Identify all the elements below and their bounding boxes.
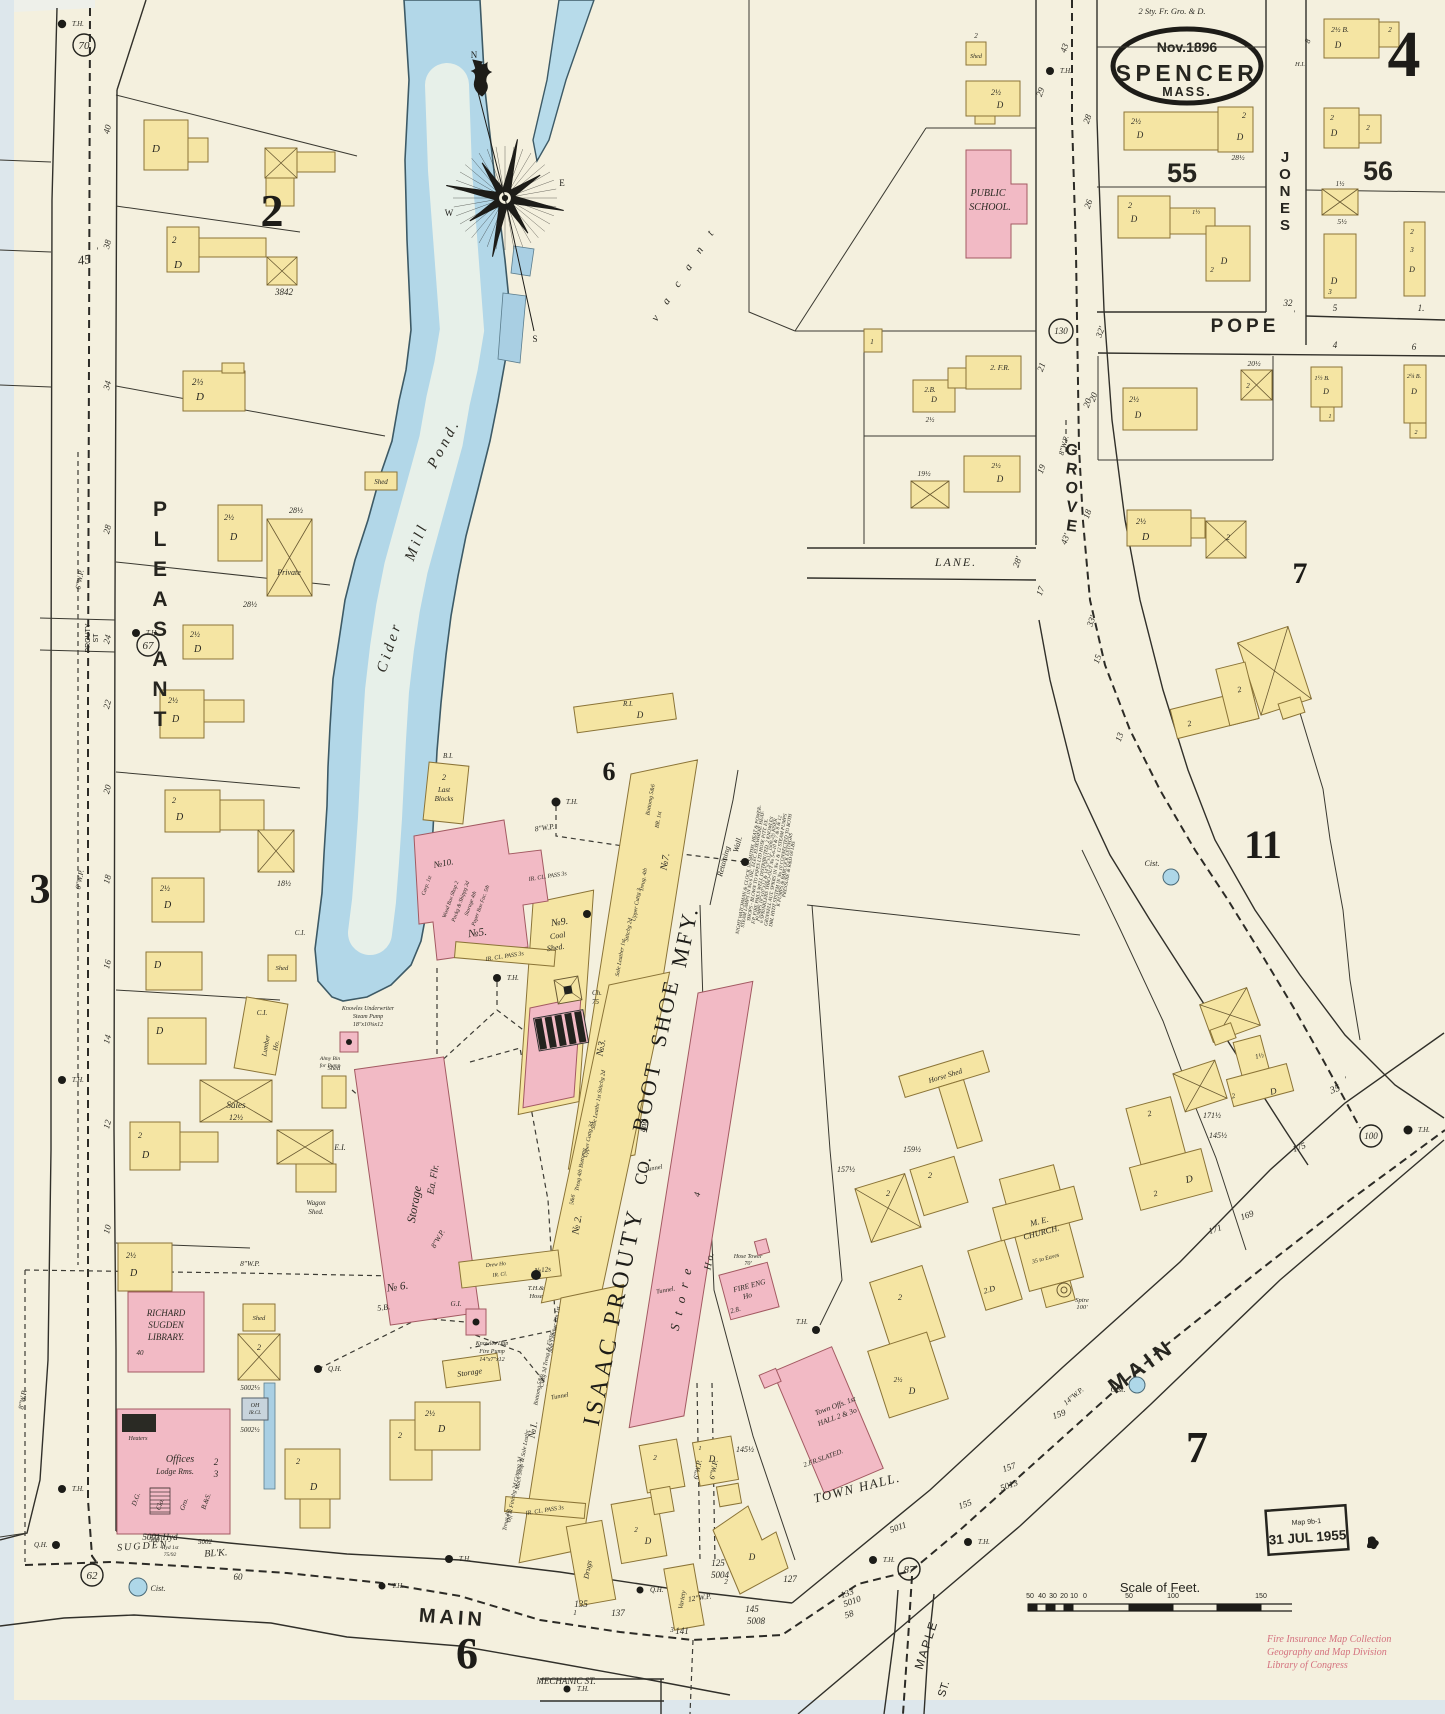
svg-text:2: 2	[1246, 382, 1250, 390]
svg-text:5002⅓: 5002⅓	[240, 1384, 260, 1392]
svg-text:Heaters: Heaters	[128, 1436, 149, 1442]
svg-text:J: J	[1281, 149, 1289, 166]
svg-text:20½: 20½	[1247, 359, 1261, 368]
svg-text:2½: 2½	[160, 884, 170, 893]
svg-text:Knowles Dup: Knowles Dup	[475, 1341, 509, 1347]
svg-text:32: 32	[1283, 298, 1294, 308]
svg-text:Cist.: Cist.	[151, 1584, 166, 1593]
svg-text:2: 2	[1210, 266, 1214, 274]
svg-text:100': 100'	[1076, 1304, 1088, 1311]
svg-text:2½: 2½	[190, 630, 200, 639]
svg-text:T.H.: T.H.	[392, 1582, 404, 1590]
svg-text:A: A	[152, 588, 167, 611]
svg-text:2: 2	[653, 1454, 657, 1462]
svg-text:Cist.: Cist.	[1111, 1385, 1126, 1394]
svg-text:D: D	[1141, 532, 1150, 543]
svg-text:A: A	[152, 648, 167, 671]
svg-text:O: O	[1064, 479, 1079, 498]
svg-text:8"W.P.: 8"W.P.	[240, 1259, 260, 1268]
svg-text:Q.H.: Q.H.	[328, 1365, 342, 1373]
svg-text:IR.CL: IR.CL	[248, 1411, 261, 1416]
svg-text:D: D	[1236, 132, 1244, 142]
svg-text:T.H.: T.H.	[146, 629, 158, 637]
svg-text:5002½: 5002½	[240, 1426, 260, 1434]
svg-text:Steam Pump: Steam Pump	[353, 1014, 383, 1020]
svg-text:Fire Insurance Map Collection: Fire Insurance Map Collection	[1266, 1634, 1391, 1645]
svg-text:T.H.: T.H.	[883, 1556, 895, 1564]
svg-text:T.H.: T.H.	[72, 1076, 84, 1084]
svg-text:MASS.: MASS.	[1162, 85, 1212, 99]
svg-text:40: 40	[137, 1349, 145, 1357]
svg-text:D: D	[195, 391, 204, 403]
svg-text:N: N	[471, 50, 478, 60]
svg-text:Spire: Spire	[1075, 1297, 1089, 1304]
svg-text:1½: 1½	[1336, 180, 1346, 188]
svg-text:E: E	[559, 178, 565, 188]
svg-text:2½: 2½	[168, 696, 178, 705]
svg-text:C.I.: C.I.	[257, 1009, 268, 1017]
svg-text:Hyd 1st: Hyd 1st	[161, 1545, 179, 1551]
svg-text:Hose: Hose	[528, 1293, 542, 1300]
svg-text:2½: 2½	[1136, 517, 1146, 526]
svg-text:127: 127	[783, 1574, 797, 1584]
svg-text:1: 1	[870, 338, 874, 346]
svg-text:2: 2	[1330, 113, 1334, 122]
svg-text:2½: 2½	[991, 88, 1001, 97]
svg-text:5.B.: 5.B.	[377, 1302, 391, 1313]
svg-text:D: D	[141, 1150, 150, 1161]
svg-text:2. F.R.: 2. F.R.	[990, 363, 1010, 372]
svg-text:56: 56	[1363, 156, 1393, 186]
svg-text:D: D	[1322, 387, 1329, 396]
svg-text:1.: 1.	[1418, 303, 1425, 313]
svg-text:2½: 2½	[1131, 117, 1141, 126]
svg-text:Shed: Shed	[374, 478, 388, 486]
svg-text:2: 2	[928, 1171, 932, 1180]
svg-text:70': 70'	[744, 1261, 752, 1267]
svg-text:11: 11	[1244, 822, 1282, 867]
svg-text:2: 2	[1410, 228, 1414, 236]
svg-text:Fire Pump: Fire Pump	[478, 1349, 505, 1355]
svg-text:7: 7	[1293, 557, 1308, 590]
svg-text:5004: 5004	[711, 1570, 730, 1580]
svg-text:Q.H.: Q.H.	[650, 1586, 664, 1594]
svg-text:T.H.: T.H.	[1060, 67, 1072, 75]
svg-text:D: D	[636, 710, 644, 720]
svg-text:5: 5	[1333, 303, 1338, 313]
svg-text:145: 145	[745, 1604, 759, 1614]
svg-text:D: D	[173, 259, 182, 271]
svg-text:30: 30	[1049, 1593, 1057, 1600]
svg-text:D: D	[644, 1536, 652, 1546]
svg-text:2½: 2½	[991, 461, 1001, 470]
svg-text:T.H.: T.H.	[507, 974, 519, 982]
svg-text:2: 2	[1242, 111, 1246, 120]
svg-text:D: D	[1220, 256, 1228, 266]
svg-text:137: 137	[611, 1608, 625, 1618]
svg-text:7: 7	[1186, 1423, 1208, 1472]
svg-text:1: 1	[698, 1445, 701, 1452]
svg-text:T.H.: T.H.	[978, 1538, 990, 1546]
svg-text:Geography and Map Division: Geography and Map Division	[1267, 1647, 1387, 1658]
svg-text:D: D	[163, 900, 172, 911]
svg-text:2½: 2½	[1129, 395, 1139, 404]
svg-text:2: 2	[257, 1343, 261, 1352]
svg-text:E: E	[153, 558, 167, 581]
svg-text:2: 2	[172, 796, 176, 805]
svg-text:E: E	[1280, 200, 1290, 217]
svg-text:T.H.&: T.H.&	[528, 1285, 545, 1292]
svg-text:2½: 2½	[224, 513, 234, 522]
svg-text:2: 2	[296, 1457, 300, 1466]
svg-text:171½: 171½	[1203, 1111, 1221, 1120]
svg-text:2.B.: 2.B.	[924, 386, 936, 394]
svg-text:D: D	[153, 960, 162, 971]
svg-text:Knowles Underwriter: Knowles Underwriter	[341, 1006, 395, 1012]
svg-text:2: 2	[1226, 533, 1230, 542]
svg-text:145½: 145½	[1209, 1131, 1227, 1140]
svg-text:62: 62	[87, 1570, 99, 1582]
svg-text:19½: 19½	[917, 469, 931, 478]
svg-text:Library of Congress: Library of Congress	[1266, 1660, 1348, 1671]
svg-text:5½: 5½	[1337, 217, 1347, 226]
svg-text:Wagon: Wagon	[306, 1199, 326, 1207]
svg-text:75/92: 75/92	[164, 1552, 177, 1558]
svg-text:D: D	[193, 644, 202, 655]
svg-text:D: D	[748, 1552, 756, 1562]
svg-text:T.H.: T.H.	[72, 1485, 84, 1493]
svg-text:100: 100	[1364, 1131, 1378, 1141]
svg-text:D: D	[1134, 410, 1142, 420]
svg-text:2: 2	[1366, 124, 1370, 132]
svg-text:60: 60	[234, 1572, 244, 1582]
svg-text:D: D	[437, 1424, 446, 1435]
svg-text:2: 2	[138, 1131, 142, 1140]
svg-text:28½: 28½	[1231, 153, 1245, 162]
svg-text:Sales: Sales	[227, 1100, 246, 1110]
svg-text:3842: 3842	[274, 287, 294, 297]
svg-text:T.H.: T.H.	[566, 798, 578, 806]
svg-text:2¼ B.: 2¼ B.	[1407, 374, 1421, 380]
svg-text:PROUTY: PROUTY	[85, 623, 92, 653]
svg-text:D: D	[155, 1026, 164, 1037]
svg-text:18½: 18½	[277, 879, 291, 888]
svg-text:B.I.: B.I.	[443, 752, 453, 760]
svg-text:D: D	[151, 143, 160, 155]
svg-text:3: 3	[1409, 246, 1414, 254]
svg-text:2: 2	[442, 773, 446, 782]
svg-text:Shed: Shed	[970, 54, 983, 60]
svg-text:40: 40	[1038, 1593, 1046, 1600]
svg-text:N: N	[152, 678, 167, 701]
svg-text:LANE.: LANE.	[934, 555, 977, 569]
svg-text:LIBRARY.: LIBRARY.	[147, 1332, 184, 1342]
svg-text:14"x7"x12: 14"x7"x12	[479, 1356, 504, 1363]
svg-text:2: 2	[974, 32, 978, 40]
svg-text:2: 2	[214, 1457, 219, 1467]
svg-text:100: 100	[1167, 1593, 1179, 1600]
svg-text:D: D	[1330, 128, 1338, 138]
svg-text:': '	[1293, 309, 1295, 318]
svg-text:S: S	[532, 334, 537, 344]
svg-text:Shed: Shed	[276, 965, 289, 972]
svg-text:2: 2	[886, 1189, 890, 1198]
svg-text:2: 2	[898, 1293, 902, 1302]
svg-text:Cist.: Cist.	[1145, 859, 1160, 868]
svg-text:67: 67	[143, 640, 155, 652]
svg-text:145½: 145½	[736, 1445, 754, 1454]
svg-text:H.I.: H.I.	[1294, 61, 1305, 68]
svg-text:Offices: Offices	[166, 1454, 194, 1465]
svg-text:20: 20	[1060, 1593, 1068, 1600]
svg-text:125: 125	[711, 1558, 725, 1568]
svg-text:2: 2	[1415, 430, 1418, 436]
svg-text:Q.H.: Q.H.	[34, 1541, 48, 1549]
svg-text:Shed: Shed	[253, 1315, 266, 1322]
svg-text:Ch.: Ch.	[592, 989, 602, 997]
svg-text:1½ B.: 1½ B.	[1314, 375, 1330, 382]
svg-text:D: D	[229, 532, 238, 543]
svg-text:2½: 2½	[192, 377, 204, 387]
svg-text:D: D	[1330, 276, 1338, 286]
svg-text:3: 3	[30, 867, 51, 913]
svg-text:SPENCER: SPENCER	[1116, 60, 1259, 86]
svg-text:E.I.: E.I.	[333, 1143, 346, 1152]
svg-text:2: 2	[634, 1526, 638, 1534]
svg-text:PUBLIC: PUBLIC	[970, 188, 1006, 199]
svg-text:W: W	[445, 208, 454, 218]
svg-text:2: 2	[261, 185, 284, 236]
svg-text:G.I.: G.I.	[451, 1300, 462, 1308]
svg-text:2½: 2½	[926, 416, 936, 424]
svg-text:2: 2	[172, 235, 177, 245]
svg-text:SCHOOL.: SCHOOL.	[969, 202, 1010, 213]
svg-text:6: 6	[603, 757, 616, 786]
svg-text:T.H.: T.H.	[72, 20, 84, 28]
svg-text:POPE: POPE	[1211, 316, 1280, 337]
svg-text:3: 3	[669, 1626, 674, 1634]
svg-text:50: 50	[1125, 1593, 1133, 1600]
svg-text:3: 3	[213, 1469, 219, 1479]
svg-text:50: 50	[1026, 1593, 1034, 1600]
svg-text:BL'K.: BL'K.	[204, 1547, 228, 1560]
svg-text:Almy Bin: Almy Bin	[319, 1056, 341, 1062]
svg-text:D: D	[129, 1268, 138, 1279]
svg-text:D: D	[908, 1386, 916, 1396]
svg-text:5002: 5002	[198, 1538, 213, 1546]
svg-text:': '	[1344, 1075, 1346, 1084]
svg-text:D: D	[1408, 265, 1415, 274]
svg-text:2½ B.: 2½ B.	[1331, 25, 1349, 34]
svg-text:S: S	[1280, 217, 1290, 234]
svg-text:T.H.: T.H.	[459, 1555, 471, 1563]
svg-text:1½: 1½	[1192, 209, 1200, 216]
svg-text:4: 4	[1333, 340, 1338, 350]
svg-text:Lodge Rms.: Lodge Rms.	[155, 1467, 194, 1476]
svg-text:2½: 2½	[894, 1376, 904, 1384]
svg-text:2 Sty. Fr. Gro. & D.: 2 Sty. Fr. Gro. & D.	[1139, 6, 1206, 16]
svg-text:RICHARD: RICHARD	[146, 1308, 186, 1318]
svg-text:T: T	[154, 708, 167, 731]
svg-text:10: 10	[1070, 1593, 1078, 1600]
svg-text:6: 6	[456, 1629, 478, 1678]
svg-text:D: D	[1136, 130, 1144, 140]
svg-text:D: D	[1130, 214, 1138, 224]
svg-text:D: D	[171, 714, 180, 725]
svg-text:R.I.: R.I.	[622, 700, 633, 708]
svg-text:4: 4	[1388, 18, 1421, 91]
svg-text:159½: 159½	[903, 1145, 921, 1154]
svg-text:D: D	[1410, 387, 1417, 396]
svg-text:130: 130	[1054, 326, 1068, 336]
svg-text:Last: Last	[437, 786, 451, 794]
svg-text:2½: 2½	[126, 1251, 136, 1260]
svg-text:L: L	[154, 528, 167, 551]
svg-text:ST: ST	[93, 633, 100, 643]
svg-text:OH: OH	[251, 1403, 260, 1409]
svg-text:157½: 157½	[837, 1165, 855, 1174]
svg-text:D: D	[1334, 40, 1342, 50]
svg-text:T.H.: T.H.	[577, 1685, 589, 1693]
svg-text:SUGDEN: SUGDEN	[148, 1320, 184, 1330]
svg-text:D: D	[996, 474, 1004, 484]
svg-text:87: 87	[904, 1564, 916, 1576]
svg-text:D: D	[930, 395, 937, 404]
svg-text:D: D	[309, 1482, 318, 1493]
svg-text:2: 2	[398, 1431, 402, 1440]
svg-text:0: 0	[1083, 1593, 1087, 1600]
svg-text:T.H.: T.H.	[1418, 1126, 1430, 1134]
svg-text:5001 Hyd: 5001 Hyd	[142, 1532, 178, 1542]
svg-text:Shed.: Shed.	[308, 1208, 324, 1216]
svg-text:141: 141	[675, 1626, 689, 1636]
svg-text:D: D	[175, 812, 184, 823]
svg-text:O: O	[1279, 166, 1291, 183]
svg-text:1: 1	[1329, 414, 1332, 420]
svg-text:12½: 12½	[229, 1113, 243, 1122]
svg-text:2½: 2½	[425, 1409, 435, 1418]
svg-text:150: 150	[1255, 1593, 1267, 1600]
svg-text:Blocks: Blocks	[435, 795, 454, 803]
svg-text:N: N	[1280, 183, 1291, 200]
svg-text:75: 75	[592, 998, 600, 1006]
svg-text:C.I.: C.I.	[295, 929, 306, 937]
svg-text:70: 70	[79, 40, 91, 52]
svg-text:5008: 5008	[747, 1616, 766, 1626]
svg-text:Private: Private	[276, 568, 301, 577]
svg-text:P: P	[153, 498, 167, 521]
svg-text:T.H.: T.H.	[796, 1318, 808, 1326]
svg-text:D: D	[996, 100, 1004, 110]
svg-text:55: 55	[1167, 158, 1197, 188]
svg-text:3: 3	[1327, 288, 1332, 296]
svg-text:18"x10⅝x12: 18"x10⅝x12	[353, 1022, 383, 1028]
svg-text:28½: 28½	[243, 600, 257, 609]
svg-text:28½: 28½	[289, 506, 303, 515]
svg-text:2: 2	[1128, 201, 1132, 210]
svg-text:6: 6	[1412, 342, 1417, 352]
svg-text:MAIN: MAIN	[418, 1605, 486, 1632]
svg-text:for Pump: for Pump	[320, 1062, 341, 1069]
svg-text:1: 1	[573, 1609, 577, 1617]
svg-text:135: 135	[574, 1599, 588, 1609]
